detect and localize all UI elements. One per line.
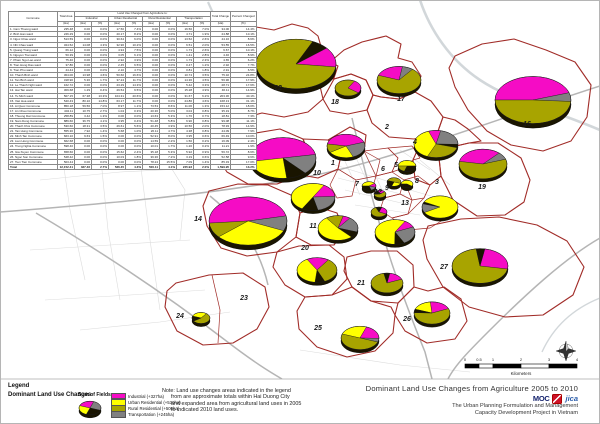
legend-pie-icon	[76, 398, 106, 422]
district-label-20: 20	[300, 245, 309, 252]
value-cell: 4.1%	[160, 164, 177, 169]
district-label-17: 17	[397, 96, 406, 103]
legend-label: Industrial (+327ha)	[128, 394, 164, 399]
pie-chart-district-17	[377, 66, 421, 96]
jica-logo: jica	[565, 394, 578, 403]
district-label-16: 16	[523, 121, 531, 128]
value-cell: 2.0%	[194, 164, 211, 169]
scale-tick-label: 3	[548, 357, 551, 362]
pie-chart-district-20	[297, 258, 337, 286]
district-label-1: 1	[331, 160, 335, 167]
river-line	[542, 298, 600, 352]
pie-chart-district-12b	[371, 207, 387, 220]
value-cell: 526.45	[109, 164, 126, 169]
district-label-26: 26	[402, 316, 411, 323]
district-label-11: 11	[309, 223, 316, 230]
moc-logo: MOC	[533, 394, 550, 403]
pie-chart-district-13	[422, 196, 458, 221]
district-label-8: 8	[415, 178, 419, 185]
district-label-2: 2	[384, 124, 389, 131]
scale-tick-label: 4	[576, 357, 579, 362]
district-label-14: 14	[194, 216, 202, 223]
district-label-22: 22	[273, 85, 282, 92]
district-label-24: 24	[175, 313, 184, 320]
district-label-5: 5	[394, 162, 398, 169]
value-cell: 4.3%	[126, 164, 143, 169]
map-title: Dominant Land Use Changes from Agricultu…	[258, 384, 578, 393]
minor-road	[140, 160, 160, 310]
value-cell: 2.7%	[92, 164, 109, 169]
pie-chart-district-27	[452, 249, 508, 287]
col-commune: Commune	[9, 12, 58, 27]
col-total-change: Total Change	[211, 12, 231, 22]
jica-redmark-icon	[552, 394, 562, 404]
scale-tick-label: 0.5	[476, 357, 482, 362]
legend-panel: Legend Dominant Land Use Changes Sum of …	[8, 383, 168, 398]
district-label-4: 4	[412, 139, 417, 146]
pie-chart-district-25	[341, 326, 379, 353]
pie-chart-district-26	[414, 302, 450, 327]
district-label-9: 9	[385, 185, 389, 192]
legend-swatch-transportation	[111, 411, 126, 418]
value-cell: 245.93	[177, 164, 194, 169]
pie-chart-district-19	[459, 149, 507, 182]
pie-chart-district-21	[371, 273, 403, 296]
org-line-2: Capacity Development Project in Vietnam	[258, 410, 578, 417]
land-use-table-panel: Commune Total Area Land Use Changed from…	[8, 11, 257, 170]
pie-chart-district-14	[209, 197, 287, 250]
col-pct-change: Percent Changed	[231, 12, 257, 22]
pie-chart-district-15	[250, 138, 316, 183]
compass-rose-icon	[556, 341, 576, 361]
scale-unit-label: Kilometers	[511, 371, 533, 376]
scale-tick-label: 2	[520, 357, 523, 362]
pie-chart-district-8	[401, 180, 413, 190]
commune-cell: Total	[9, 164, 58, 169]
district-label-19: 19	[478, 184, 486, 191]
district-label-6: 6	[381, 166, 385, 173]
pie-chart-district-5	[398, 160, 416, 174]
minor-road	[300, 350, 470, 372]
district-label-7: 7	[355, 181, 360, 188]
logo-row: MOC jica	[258, 394, 578, 403]
pie-chart-district-9	[387, 178, 401, 190]
scale-tick-label: 1	[492, 357, 495, 362]
value-cell: 12,152.41	[58, 164, 75, 169]
value-cell: 327.46	[75, 164, 92, 169]
land-use-table: Commune Total Area Land Use Changed from…	[8, 11, 257, 170]
pie-chart-district-13b	[375, 220, 415, 248]
minor-road	[45, 290, 205, 300]
value-cell: 500.11	[143, 164, 160, 169]
pie-chart-district-18	[335, 80, 361, 99]
org-line-1: The Urban Planning Formulation and Manag…	[258, 403, 578, 410]
district-label-27: 27	[439, 264, 449, 271]
legend-title: Legend	[8, 383, 168, 389]
title-block: Dominant Land Use Changes from Agricultu…	[258, 384, 578, 417]
pie-chart-district-22	[256, 39, 336, 93]
district-label-21: 21	[356, 280, 365, 287]
pie-chart-district-10	[291, 183, 335, 213]
pie-chart-district-4	[414, 130, 458, 160]
pie-chart-district-24	[192, 312, 210, 326]
district-label-13: 13	[401, 200, 409, 207]
district-label-10: 10	[313, 170, 321, 177]
scale-bar: 00.51234Kilometers	[464, 357, 579, 376]
district-label-12: 12	[374, 189, 382, 196]
district-label-23: 23	[239, 295, 248, 302]
district-label-18: 18	[331, 99, 339, 106]
pie-chart-district-11	[318, 216, 358, 244]
table-header: Commune Total Area Land Use Changed from…	[9, 12, 257, 27]
pie-chart-district-1	[327, 134, 365, 161]
pie-slice-M	[480, 249, 508, 269]
col-total-area: Total Area	[58, 12, 75, 22]
table-total-row: Total12,152.41327.462.7%526.454.3%500.11…	[9, 164, 257, 169]
legend-pie-glyph	[79, 401, 101, 418]
value-cell: 1,599.95	[211, 164, 231, 169]
district-label-25: 25	[313, 325, 322, 332]
value-cell: 13.2%	[231, 164, 257, 169]
pie-chart-district-16	[495, 76, 571, 128]
district-label-3: 3	[435, 179, 439, 186]
scale-tick-label: 0	[464, 357, 467, 362]
